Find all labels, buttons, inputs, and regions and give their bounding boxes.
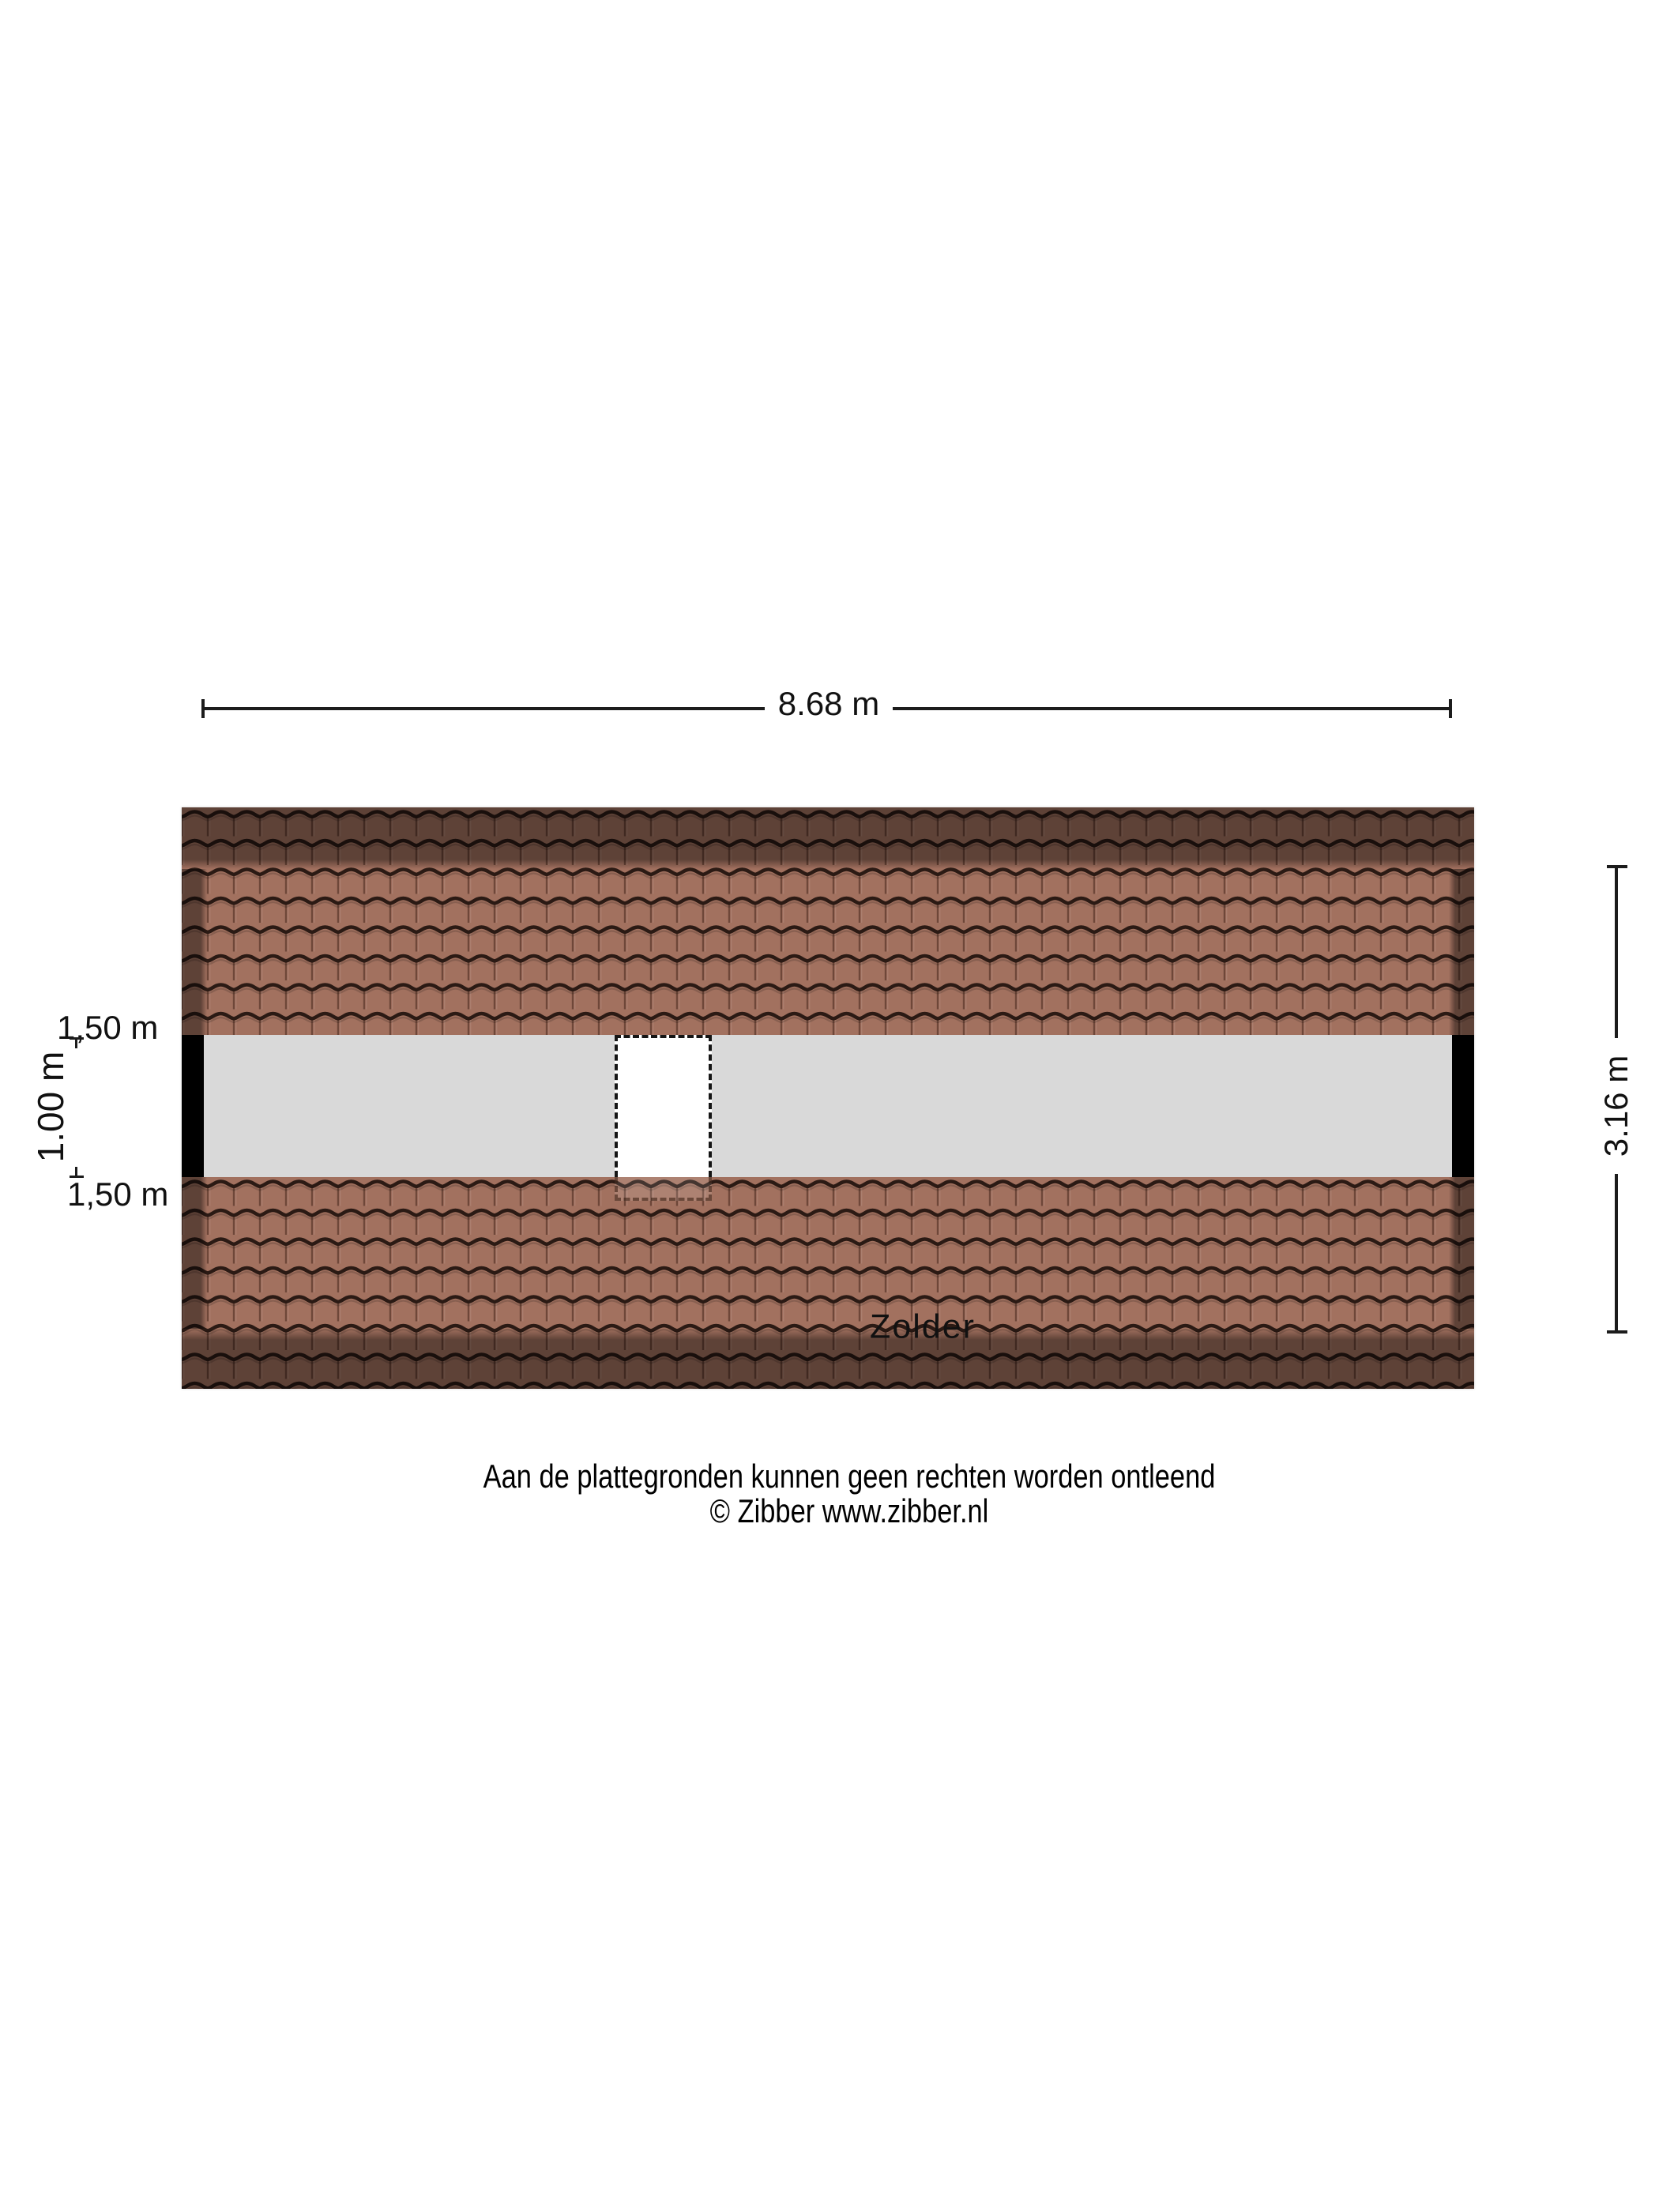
copyright-text: © Zibber www.zibber.nl (483, 1494, 1216, 1529)
dim-line-segment (1615, 1174, 1618, 1330)
dimension-depth-label: 3.16 m (1600, 1055, 1633, 1157)
roof-tile-pattern (182, 807, 1474, 1035)
dimension-width-label: 8.68 m (778, 687, 879, 720)
dim-line-segment (893, 707, 1452, 710)
attic-floor: Zolder (182, 1035, 1474, 1177)
stair-opening-under-roof (615, 1177, 712, 1201)
room-label: Zolder (870, 1308, 976, 1347)
roof-slope-bottom (182, 1177, 1474, 1389)
dim-tick-stub (75, 1167, 77, 1176)
plan-canvas: Zolder (182, 807, 1474, 1389)
roof-tile-pattern (182, 1177, 1474, 1389)
floorplan-page: 8.68 m 3.16 m 1,50 m 1.00 m 1,50 m (0, 0, 1659, 2212)
dim-tick (1449, 699, 1452, 718)
gable-wall-right (1452, 1035, 1474, 1177)
disclaimer-text: Aan de plattegronden kunnen geen rechten… (483, 1459, 1216, 1494)
dim-tick-stub (75, 1040, 77, 1048)
stair-opening (615, 1035, 712, 1177)
knee-wall-bottom-label: 1,50 m (67, 1178, 168, 1211)
dim-tick (1607, 1330, 1627, 1334)
gable-wall-left (182, 1035, 204, 1177)
roof-slope-top (182, 807, 1474, 1035)
dim-line-segment (203, 707, 765, 710)
dim-line-segment (1615, 867, 1618, 1038)
disclaimer: Aan de plattegronden kunnen geen rechten… (483, 1459, 1216, 1529)
ridge-span-label: 1.00 m (32, 1051, 69, 1163)
